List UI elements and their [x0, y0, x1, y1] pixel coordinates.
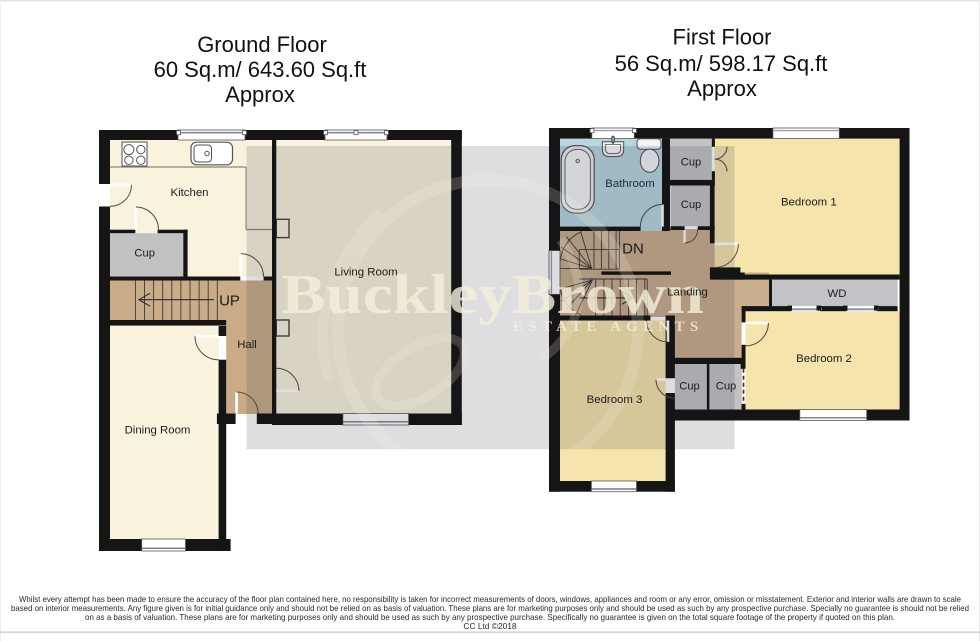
svg-text:WD: WD	[828, 288, 847, 300]
svg-text:Ground Floor: Ground Floor	[197, 32, 327, 57]
svg-text:Approx: Approx	[225, 82, 295, 107]
svg-text:UP: UP	[219, 293, 240, 310]
svg-text:Bathroom: Bathroom	[605, 178, 654, 190]
svg-text:Landing: Landing	[667, 287, 708, 299]
svg-text:Bedroom 1: Bedroom 1	[781, 197, 837, 209]
svg-text:Kitchen: Kitchen	[171, 187, 209, 199]
svg-text:First Floor: First Floor	[673, 25, 772, 50]
svg-text:Approx: Approx	[687, 76, 757, 101]
svg-text:Hall: Hall	[237, 339, 257, 351]
svg-text:Cup: Cup	[681, 199, 702, 211]
svg-text:Cup: Cup	[679, 381, 700, 393]
svg-text:DN: DN	[622, 241, 644, 258]
svg-text:Dining Room: Dining Room	[125, 425, 191, 437]
svg-text:Cup: Cup	[681, 157, 702, 169]
svg-text:Cup: Cup	[134, 248, 155, 260]
svg-text:60 Sq.m/ 643.60 Sq.ft: 60 Sq.m/ 643.60 Sq.ft	[154, 57, 367, 82]
svg-text:ESTATE AGENTS: ESTATE AGENTS	[513, 319, 703, 335]
svg-text:CC Ltd ©2018: CC Ltd ©2018	[463, 621, 517, 631]
svg-text:Bedroom 3: Bedroom 3	[587, 394, 643, 406]
svg-text:56 Sq.m/ 598.17 Sq.ft: 56 Sq.m/ 598.17 Sq.ft	[615, 51, 828, 76]
svg-text:Bedroom 2: Bedroom 2	[796, 353, 852, 365]
svg-text:Living Room: Living Room	[334, 267, 397, 279]
svg-text:Cup: Cup	[716, 381, 737, 393]
